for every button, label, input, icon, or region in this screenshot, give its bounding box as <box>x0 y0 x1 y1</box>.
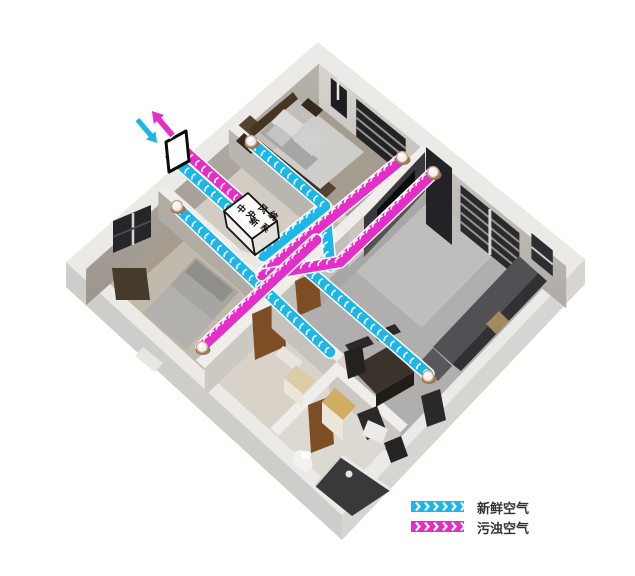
svg-text:污浊空气: 污浊空气 <box>477 521 529 536</box>
svg-text:新鲜空气: 新鲜空气 <box>477 501 529 516</box>
